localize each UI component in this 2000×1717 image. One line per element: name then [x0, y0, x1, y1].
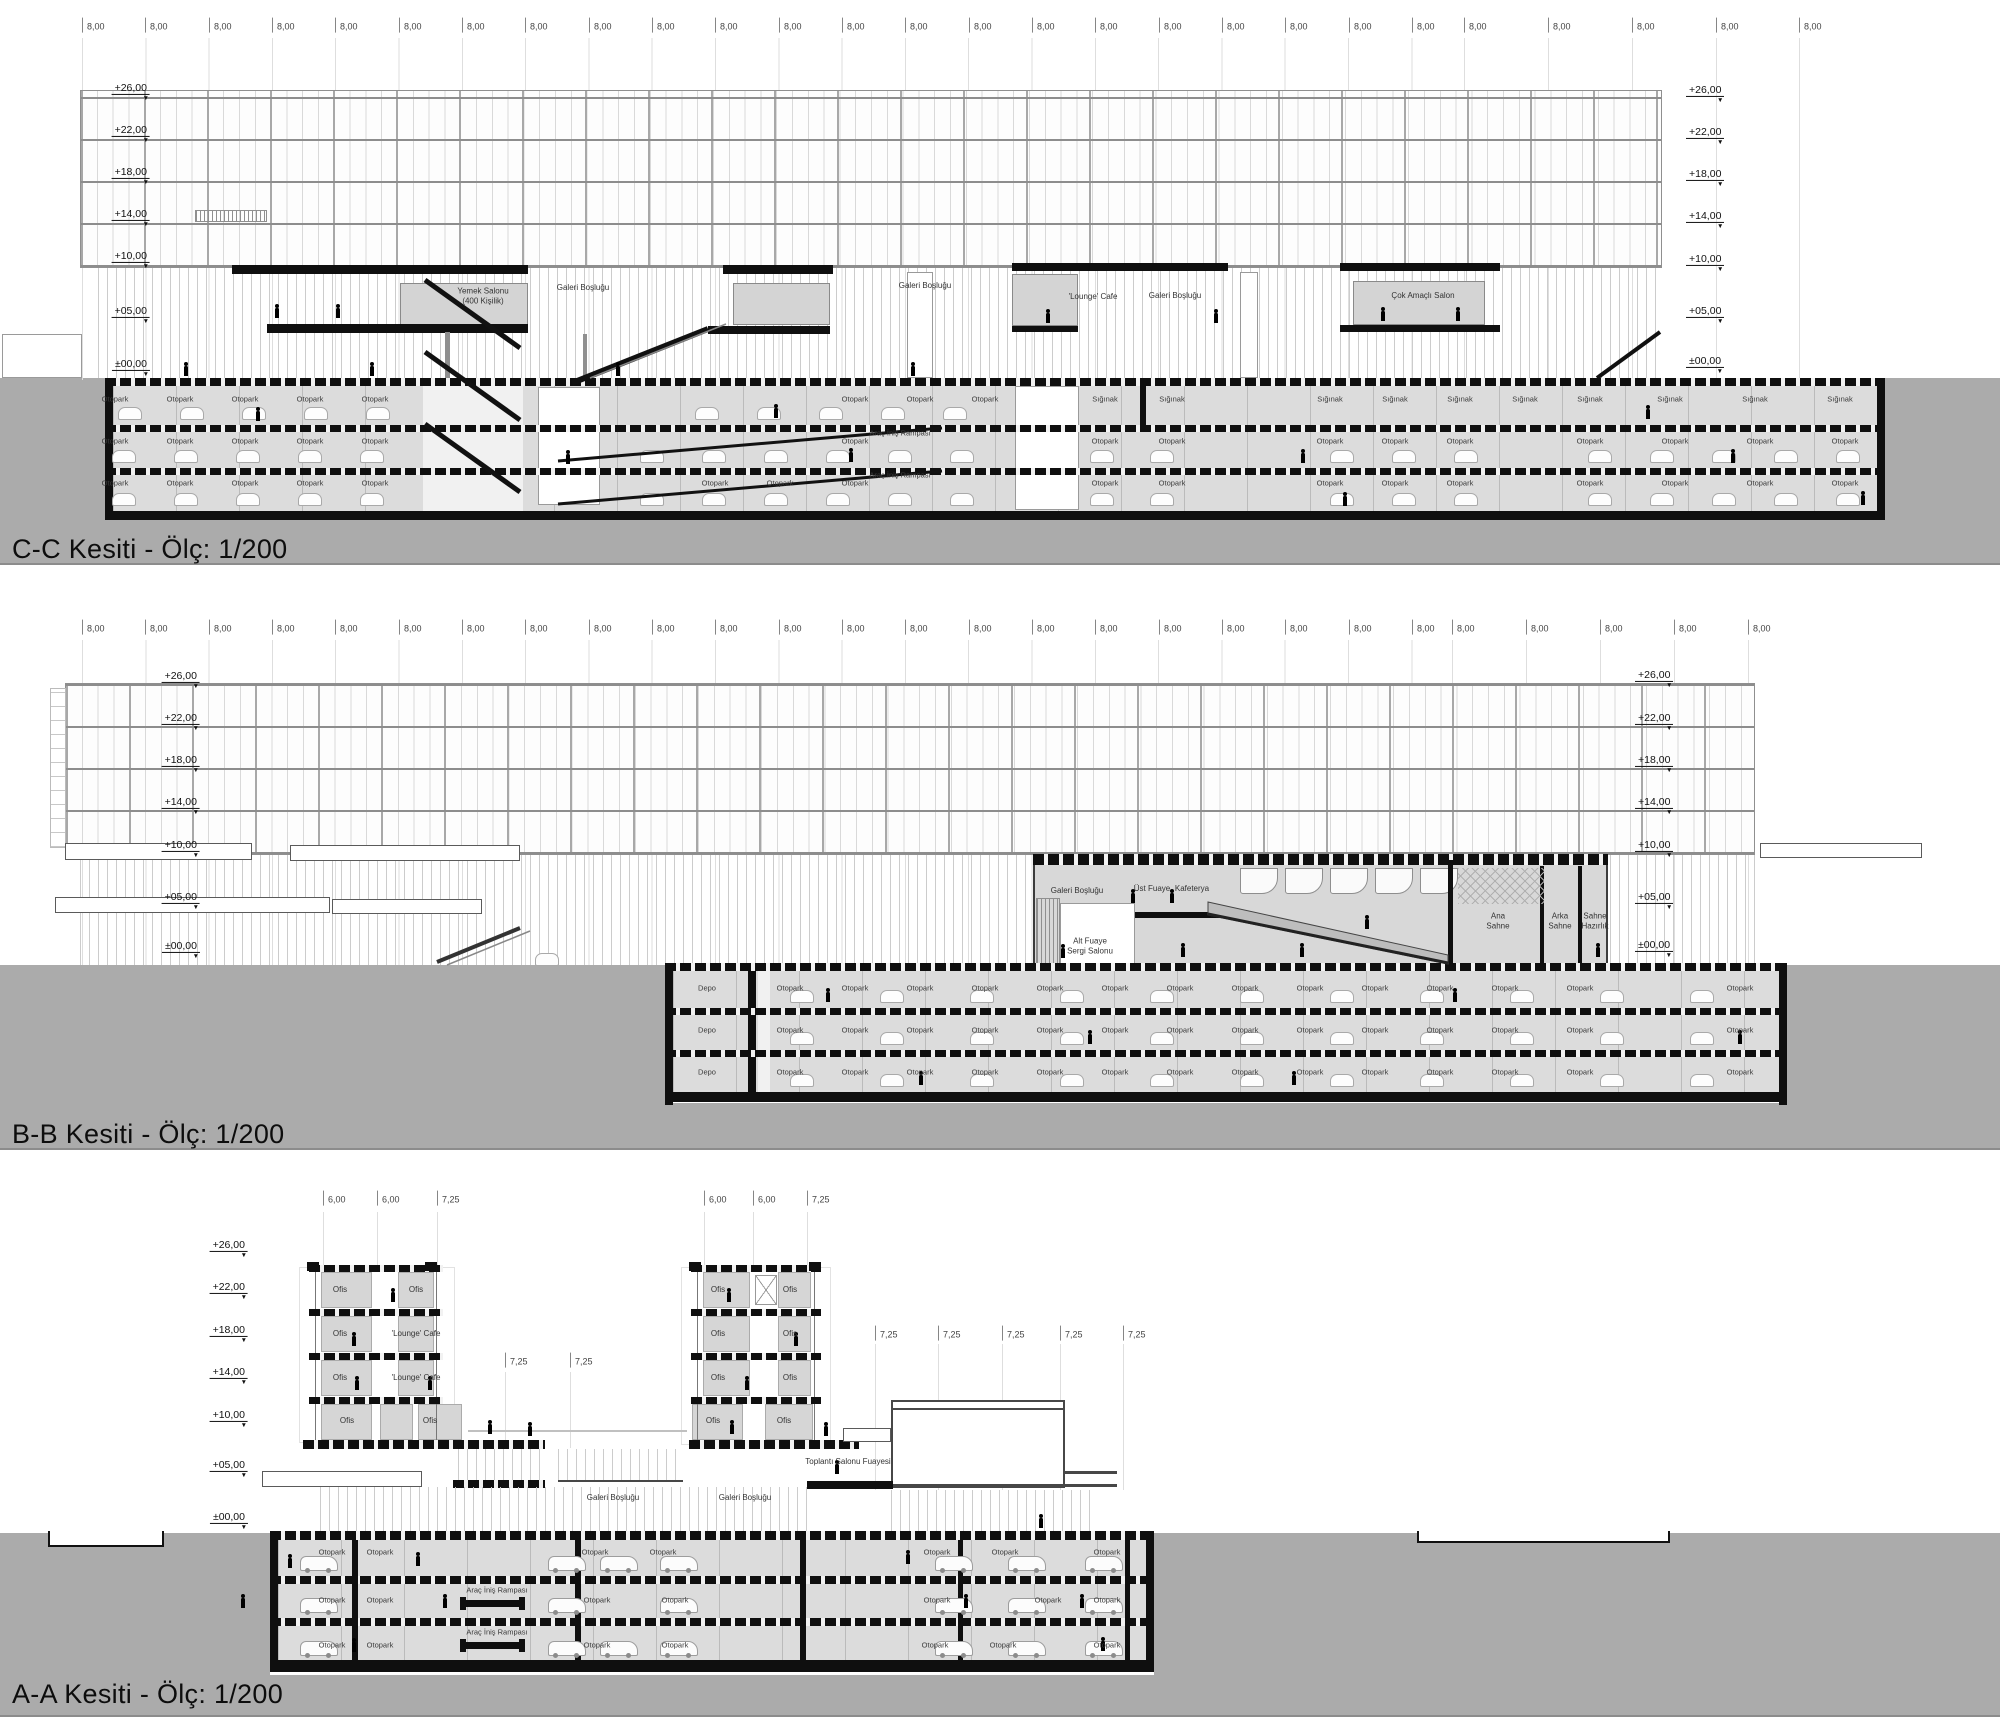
parking-label: Araç İniş Rampası	[466, 1586, 527, 1595]
room-label: Ofis	[340, 1416, 354, 1426]
dimension-label: 6,00	[753, 1195, 776, 1206]
parking-label: Otopark	[367, 1641, 394, 1650]
room-label: Ofis	[409, 1285, 423, 1295]
parking-label: Otopark	[319, 1548, 346, 1557]
parking-label: Otopark	[367, 1548, 394, 1557]
elevation-label: +14,00▼	[210, 1366, 248, 1379]
dimension-label: 6,00	[323, 1195, 346, 1206]
room-label: Ofis	[333, 1285, 347, 1295]
elevation-marker-icon: ▼	[241, 1525, 247, 1532]
parking-label: Otopark	[662, 1596, 689, 1605]
room-label: Ofis	[711, 1373, 725, 1383]
dimension-label: 6,00	[377, 1195, 400, 1206]
section-aa-title: A-A Kesiti - Ölç: 1/200	[12, 1679, 283, 1710]
parking-label: Otopark	[584, 1596, 611, 1605]
parking-label: Araç İniş Rampası	[466, 1628, 527, 1637]
room-label: Toplantı Salonu Fuayesi	[805, 1457, 890, 1467]
room-label: Ofis	[783, 1329, 797, 1339]
elevation-marker-icon: ▼	[241, 1338, 247, 1345]
elevation-label: +05,00▼	[210, 1459, 248, 1472]
room-label: Ofis	[783, 1373, 797, 1383]
parking-label: Otopark	[582, 1548, 609, 1557]
dimension-label: 7,25	[437, 1195, 460, 1206]
dimension-label: 7,25	[875, 1330, 898, 1341]
elevation-label: +18,00▼	[210, 1324, 248, 1337]
room-label: 'Lounge' Cafe	[392, 1373, 441, 1383]
room-label: Ofis	[777, 1416, 791, 1426]
elevation-label: +10,00▼	[210, 1409, 248, 1422]
parking-label: Otopark	[922, 1641, 949, 1650]
elevation-marker-icon: ▼	[241, 1295, 247, 1302]
section-bb-title: B-B Kesiti - Ölç: 1/200	[12, 1119, 285, 1150]
parking-label: Otopark	[367, 1596, 394, 1605]
parking-label: Otopark	[584, 1641, 611, 1650]
elevation-marker-icon: ▼	[241, 1423, 247, 1430]
parking-label: Otopark	[1035, 1596, 1062, 1605]
parking-label: Otopark	[662, 1641, 689, 1650]
room-label: Ofis	[706, 1416, 720, 1426]
parking-label: Otopark	[992, 1548, 1019, 1557]
parking-label: Otopark	[319, 1596, 346, 1605]
room-label: Ofis	[783, 1285, 797, 1295]
parking-label: Otopark	[990, 1641, 1017, 1650]
elevation-label: +26,00▼	[210, 1239, 248, 1252]
room-label: Ofis	[423, 1416, 437, 1426]
parking-label: Otopark	[650, 1548, 677, 1557]
elevation-marker-icon: ▼	[241, 1253, 247, 1260]
parking-label: Otopark	[319, 1641, 346, 1650]
dimension-label: 7,25	[570, 1357, 593, 1368]
elevation-marker-icon: ▼	[241, 1473, 247, 1480]
parking-label: Otopark	[1094, 1548, 1121, 1557]
dimension-label: 7,25	[1123, 1330, 1146, 1341]
elevation-label: ±00,00▼	[210, 1511, 248, 1524]
room-label: Ofis	[711, 1329, 725, 1339]
dimension-label: 6,00	[704, 1195, 727, 1206]
room-label: Ofis	[711, 1285, 725, 1295]
room-label: Ofis	[333, 1329, 347, 1339]
section-aa-labels: 6,006,006,006,007,257,257,257,257,257,25…	[0, 0, 2000, 1717]
elevation-label: +22,00▼	[210, 1281, 248, 1294]
parking-label: Otopark	[924, 1596, 951, 1605]
drawing-canvas: 8,008,008,008,008,008,008,008,008,008,00…	[0, 0, 2000, 1717]
parking-label: Otopark	[1094, 1596, 1121, 1605]
section-cc-title: C-C Kesiti - Ölç: 1/200	[12, 534, 287, 565]
room-label: 'Lounge' Cafe	[392, 1329, 441, 1339]
parking-label: Otopark	[1094, 1641, 1121, 1650]
parking-label: Otopark	[924, 1548, 951, 1557]
dimension-label: 7,25	[1002, 1330, 1025, 1341]
dimension-label: 7,25	[807, 1195, 830, 1206]
room-label: Galeri Boşluğu	[719, 1493, 771, 1503]
dimension-label: 7,25	[1060, 1330, 1083, 1341]
elevation-marker-icon: ▼	[241, 1380, 247, 1387]
room-label: Ofis	[333, 1373, 347, 1383]
room-label: Galeri Boşluğu	[587, 1493, 639, 1503]
dimension-label: 7,25	[505, 1357, 528, 1368]
dimension-label: 7,25	[938, 1330, 961, 1341]
